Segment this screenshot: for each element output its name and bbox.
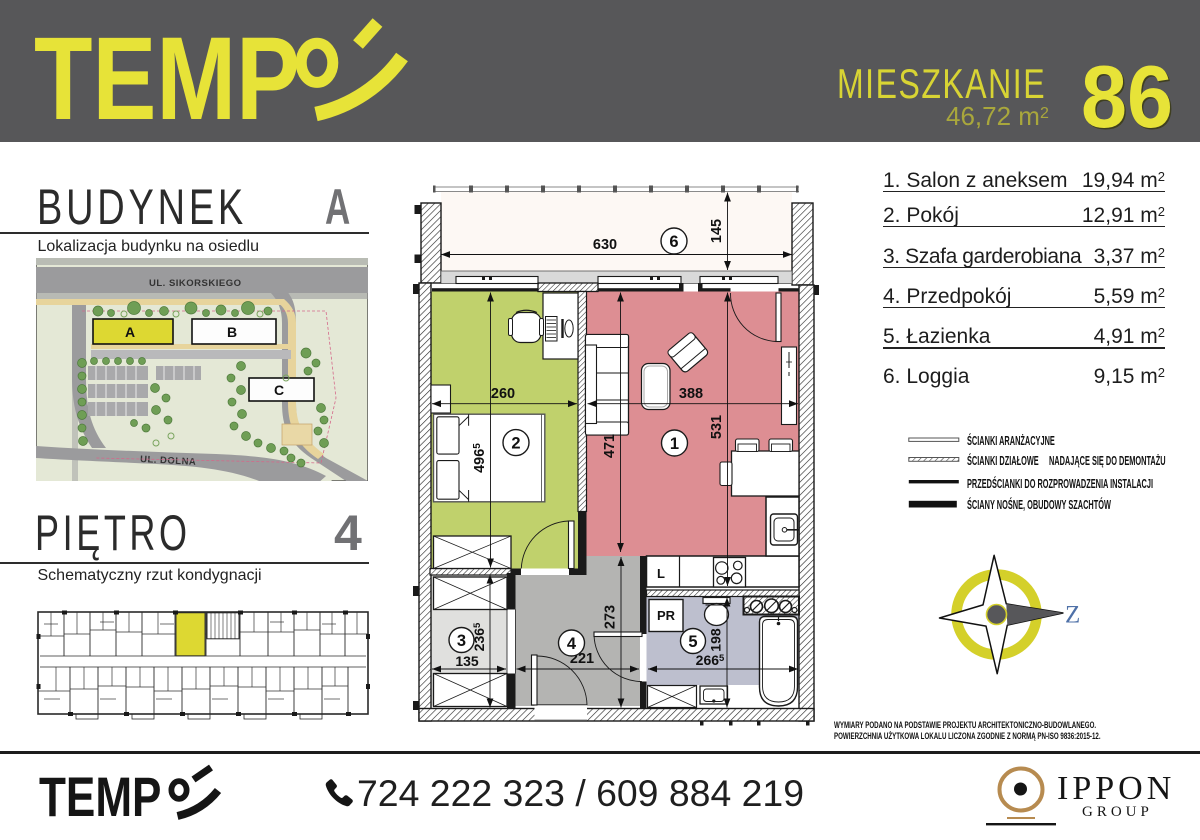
svg-text:L: L [657, 566, 665, 581]
svg-text:630: 630 [593, 237, 617, 253]
svg-text:3: 3 [457, 632, 466, 650]
svg-text:Z: Z [1065, 602, 1080, 629]
svg-text:PR: PR [657, 608, 676, 623]
svg-text:273: 273 [603, 605, 619, 629]
svg-text:260: 260 [491, 386, 515, 402]
svg-text:198: 198 [708, 628, 724, 652]
svg-text:1: 1 [670, 435, 679, 453]
svg-text:4: 4 [567, 635, 577, 653]
svg-text:135: 135 [455, 653, 479, 669]
svg-text:5: 5 [688, 633, 697, 651]
svg-text:IPPON: IPPON [1057, 770, 1175, 807]
svg-text:145: 145 [709, 219, 725, 243]
svg-text:UL. SIKORSKIEGO: UL. SIKORSKIEGO [149, 278, 241, 289]
svg-text:388: 388 [679, 386, 703, 402]
svg-text:471: 471 [602, 434, 618, 458]
svg-text:531: 531 [709, 415, 725, 439]
svg-text:GROUP: GROUP [1082, 804, 1153, 820]
svg-text:C: C [274, 382, 284, 398]
svg-text:A: A [125, 324, 135, 340]
svg-text:B: B [227, 324, 237, 340]
svg-text:6: 6 [669, 233, 678, 251]
svg-text:2: 2 [511, 435, 520, 453]
